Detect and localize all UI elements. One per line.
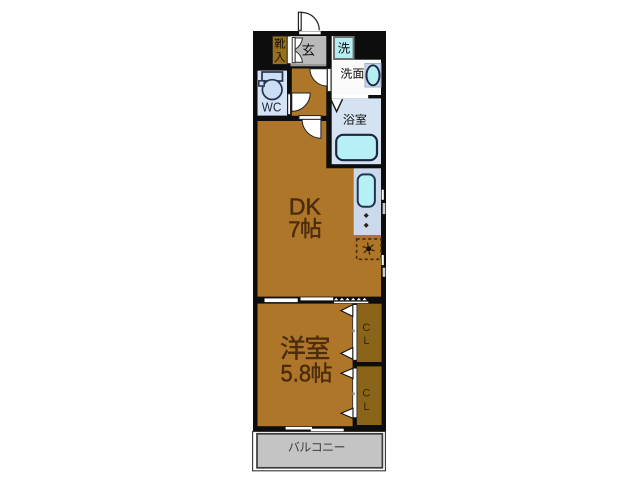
svg-text:C: C [362,322,370,334]
svg-text:5.8: 5.8 [281,360,312,387]
svg-text:7: 7 [288,217,300,242]
svg-text:WC: WC [262,100,282,114]
svg-text:C: C [362,387,370,399]
svg-text:L: L [363,335,369,347]
svg-text:L: L [363,401,369,413]
svg-text:DK: DK [289,193,322,219]
